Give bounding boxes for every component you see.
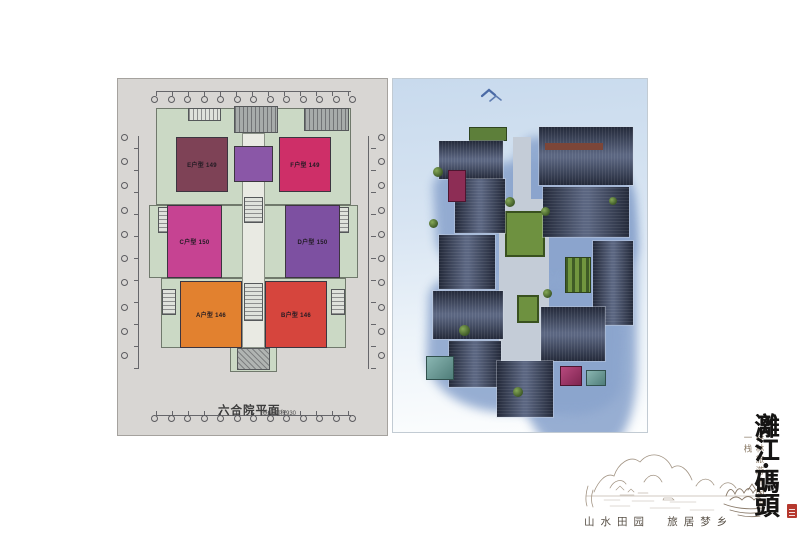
grid-bubble — [300, 415, 307, 422]
tree — [429, 219, 438, 228]
room-label-c: C户型 150 — [179, 237, 209, 246]
seal-glyph — [789, 507, 795, 516]
tree — [513, 387, 523, 397]
aerial-render-panel — [392, 78, 648, 433]
room-label-e: E户型 149 — [187, 160, 217, 169]
roof-block — [439, 235, 495, 289]
grid-bubbles-left — [121, 134, 128, 359]
room-unit-e: E户型 149 — [176, 137, 228, 192]
entry-porch-hatch — [237, 348, 270, 370]
grid-bubble — [316, 96, 323, 103]
grid-bubble — [151, 415, 158, 422]
grid-bubble — [349, 96, 356, 103]
dimension-ticks-left — [134, 136, 139, 369]
grid-bubbles-right — [378, 134, 385, 359]
room-label-f: F户型 149 — [290, 160, 319, 169]
room-unit-d: D户型 150 — [285, 205, 340, 278]
roof-accent-magenta — [449, 171, 465, 201]
grid-bubble — [184, 96, 191, 103]
stair-lower — [244, 283, 263, 321]
room-shared-hall — [234, 146, 273, 182]
grid-bubbles-top — [151, 96, 356, 103]
plan-subtitle: 基底面积930 — [262, 408, 296, 417]
roof-hatch-center — [234, 106, 278, 133]
grid-bubble — [201, 96, 208, 103]
grid-bubble — [378, 304, 385, 311]
room-unit-f: F户型 149 — [279, 137, 331, 192]
grid-bubble — [184, 415, 191, 422]
pavilion-teal — [427, 357, 453, 379]
grid-bubble — [333, 96, 340, 103]
brand-tagline: 山水田园 旅居梦乡 — [584, 514, 733, 529]
room-unit-a: A户型 146 — [180, 281, 242, 348]
roof-block — [539, 127, 633, 185]
grid-bubble — [168, 96, 175, 103]
grid-bubble — [378, 182, 385, 189]
garden-hedge-rows — [565, 257, 591, 293]
grid-bubble — [378, 158, 385, 165]
presentation-sheet: { "floor_plan": { "title": "六合院平面", "sub… — [0, 0, 800, 533]
floor-plan-panel: E户型 149 F户型 149 C户型 150 D户型 150 A户型 146 … — [117, 78, 388, 436]
grid-bubble — [217, 96, 224, 103]
tree — [541, 207, 550, 216]
room-unit-b: B户型 146 — [265, 281, 327, 348]
brand-seal — [787, 504, 797, 518]
grid-bubble — [121, 255, 128, 262]
room-unit-c: C户型 150 — [167, 205, 222, 278]
grid-bubble — [151, 96, 158, 103]
grid-bubble — [250, 96, 257, 103]
grid-bubble — [121, 328, 128, 335]
tree — [609, 197, 617, 205]
stair-mid — [244, 197, 263, 223]
grid-bubble — [121, 304, 128, 311]
grid-bubble — [378, 255, 385, 262]
grid-bubble — [168, 415, 175, 422]
pavilion-teal — [587, 371, 605, 385]
brand-logo-calligraphy: 灕江·碼頭 — [753, 413, 778, 534]
grid-bubble — [378, 134, 385, 141]
grid-bubble — [378, 328, 385, 335]
roof-ridge-accent — [545, 143, 603, 150]
tree — [543, 289, 552, 298]
tree — [433, 167, 443, 177]
grid-bubble — [121, 207, 128, 214]
roof-block — [543, 187, 629, 237]
grid-bubble — [333, 415, 340, 422]
side-stair-left-lower — [162, 289, 176, 315]
dimension-ticks-right — [371, 136, 376, 369]
tree — [505, 197, 515, 207]
roof-block — [541, 307, 605, 361]
grid-bubble — [267, 96, 274, 103]
tree — [459, 325, 470, 336]
roof-hatch-left — [188, 108, 221, 121]
room-label-b: B户型 146 — [281, 310, 311, 319]
grid-bubble — [378, 231, 385, 238]
grid-bubble — [121, 134, 128, 141]
side-stair-right-lower — [331, 289, 345, 315]
grid-bubble — [121, 182, 128, 189]
roof-block — [449, 341, 501, 387]
roof-garden-deck — [469, 127, 507, 141]
grid-bubble — [283, 96, 290, 103]
grid-bubble — [121, 231, 128, 238]
roof-block — [497, 361, 553, 417]
grid-bubble — [378, 352, 385, 359]
room-label-d: D户型 150 — [297, 237, 327, 246]
grid-bubble — [121, 279, 128, 286]
roof-hatch-right — [304, 108, 349, 131]
courtyard-lawn-small — [517, 295, 539, 323]
grid-bubble — [234, 96, 241, 103]
room-label-a: A户型 146 — [196, 310, 226, 319]
courtyard-paving — [513, 137, 531, 207]
grid-bubble — [121, 352, 128, 359]
grid-bubble — [121, 158, 128, 165]
pavilion-magenta — [561, 367, 581, 385]
grid-bubble — [378, 207, 385, 214]
grid-bubble — [316, 415, 323, 422]
grid-bubble — [349, 415, 356, 422]
grid-bubble — [378, 279, 385, 286]
birds-icon — [479, 87, 507, 105]
grid-bubble — [300, 96, 307, 103]
courtyard-lawn — [505, 211, 545, 257]
grid-bubble — [201, 415, 208, 422]
dimension-line-right — [368, 136, 369, 369]
